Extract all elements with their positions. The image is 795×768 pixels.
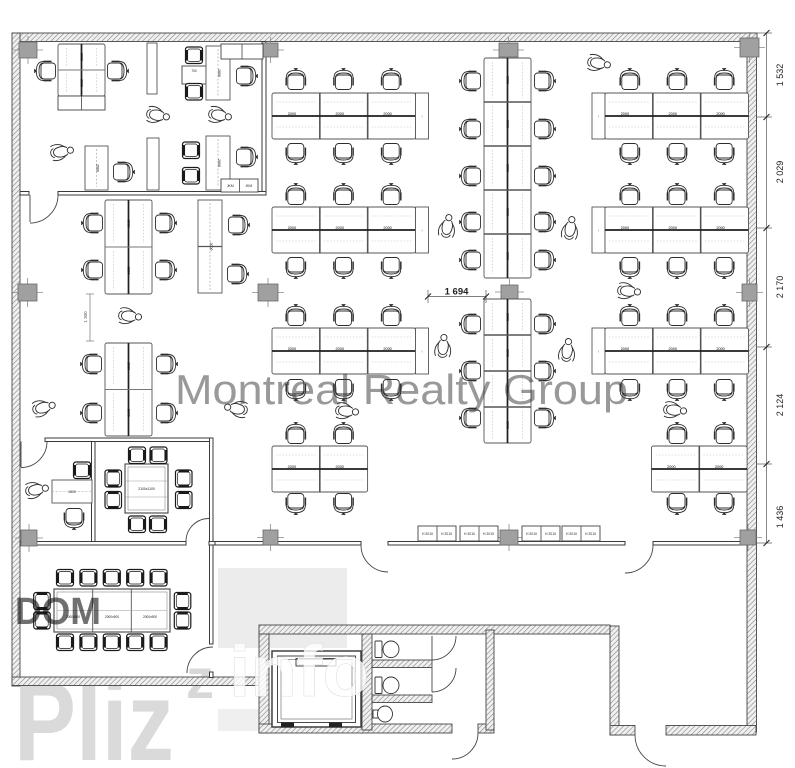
svg-text:2000: 2000 (80, 53, 84, 61)
svg-text:H 2010: H 2010 (464, 532, 475, 536)
svg-text:2000: 2000 (383, 112, 391, 116)
svg-text:2000: 2000 (716, 226, 724, 230)
svg-text:2000: 2000 (506, 164, 510, 172)
svg-text:2000: 2000 (383, 226, 391, 230)
svg-text:2000: 2000 (506, 120, 510, 128)
svg-text:2000: 2000 (217, 159, 221, 167)
svg-text:DOM: DOM (15, 591, 101, 633)
svg-text:2000: 2000 (716, 347, 724, 351)
svg-text:2000: 2000 (506, 208, 510, 216)
svg-text:2000: 2000 (127, 409, 131, 417)
svg-text:2000: 2000 (669, 347, 677, 351)
svg-text:2 170: 2 170 (775, 276, 785, 299)
svg-text:2000: 2000 (621, 112, 629, 116)
svg-text:H 2010: H 2010 (545, 532, 556, 536)
svg-text:2000: 2000 (669, 112, 677, 116)
svg-text:2000: 2000 (506, 76, 510, 84)
svg-text:2000: 2000 (669, 226, 677, 230)
svg-text:2100x1100: 2100x1100 (138, 487, 155, 491)
svg-text:2000: 2000 (288, 465, 296, 469)
svg-text:2000: 2000 (621, 347, 629, 351)
svg-text:2000x900: 2000x900 (143, 615, 157, 619)
svg-text:JKM: JKM (227, 184, 234, 188)
svg-text:Pliz: Pliz (14, 659, 174, 768)
svg-text:Montreal Realty Group: Montreal Realty Group (175, 366, 628, 413)
svg-text:H 2010: H 2010 (526, 532, 537, 536)
svg-text:2000: 2000 (621, 226, 629, 230)
svg-text:2000: 2000 (96, 164, 100, 172)
svg-text:H 2010: H 2010 (585, 532, 596, 536)
svg-text:2000: 2000 (127, 267, 131, 275)
svg-text:2000: 2000 (80, 79, 84, 87)
svg-text:2000: 2000 (288, 112, 296, 116)
svg-text:1 300: 1 300 (83, 311, 88, 323)
svg-text:2000: 2000 (336, 112, 344, 116)
svg-text:JKM: JKM (245, 184, 252, 188)
svg-text:2000: 2000 (715, 465, 723, 469)
svg-text:2000: 2000 (127, 220, 131, 228)
svg-text:2000: 2000 (506, 313, 510, 321)
svg-text:2000: 2000 (217, 69, 221, 77)
svg-text:2000: 2000 (716, 112, 724, 116)
svg-text:H 2010: H 2010 (483, 532, 494, 536)
svg-text:2000: 2000 (506, 349, 510, 357)
svg-text:H 2010: H 2010 (441, 532, 452, 536)
svg-text:2000: 2000 (667, 465, 675, 469)
svg-text:2000: 2000 (288, 347, 296, 351)
svg-text:2000x900: 2000x900 (105, 615, 119, 619)
svg-text:2 124: 2 124 (775, 394, 785, 417)
svg-text:1600: 1600 (68, 490, 76, 494)
svg-text:H 2010: H 2010 (566, 532, 577, 536)
svg-text:2 029: 2 029 (775, 161, 785, 184)
svg-text:2000: 2000 (336, 226, 344, 230)
svg-text:2000: 2000 (336, 347, 344, 351)
svg-text:1 532: 1 532 (775, 64, 785, 87)
svg-text:2000: 2000 (288, 226, 296, 230)
svg-text:H 2010: H 2010 (422, 532, 433, 536)
svg-text:2000: 2000 (383, 347, 391, 351)
svg-text:2000: 2000 (335, 465, 343, 469)
svg-text:700: 700 (191, 69, 197, 73)
svg-text:1 436: 1 436 (775, 506, 785, 529)
svg-text:info: info (229, 632, 369, 712)
svg-text:2000: 2000 (127, 362, 131, 370)
svg-text:1 694: 1 694 (445, 287, 469, 298)
svg-text:2000: 2000 (506, 252, 510, 260)
svg-text:2000: 2000 (506, 421, 510, 429)
